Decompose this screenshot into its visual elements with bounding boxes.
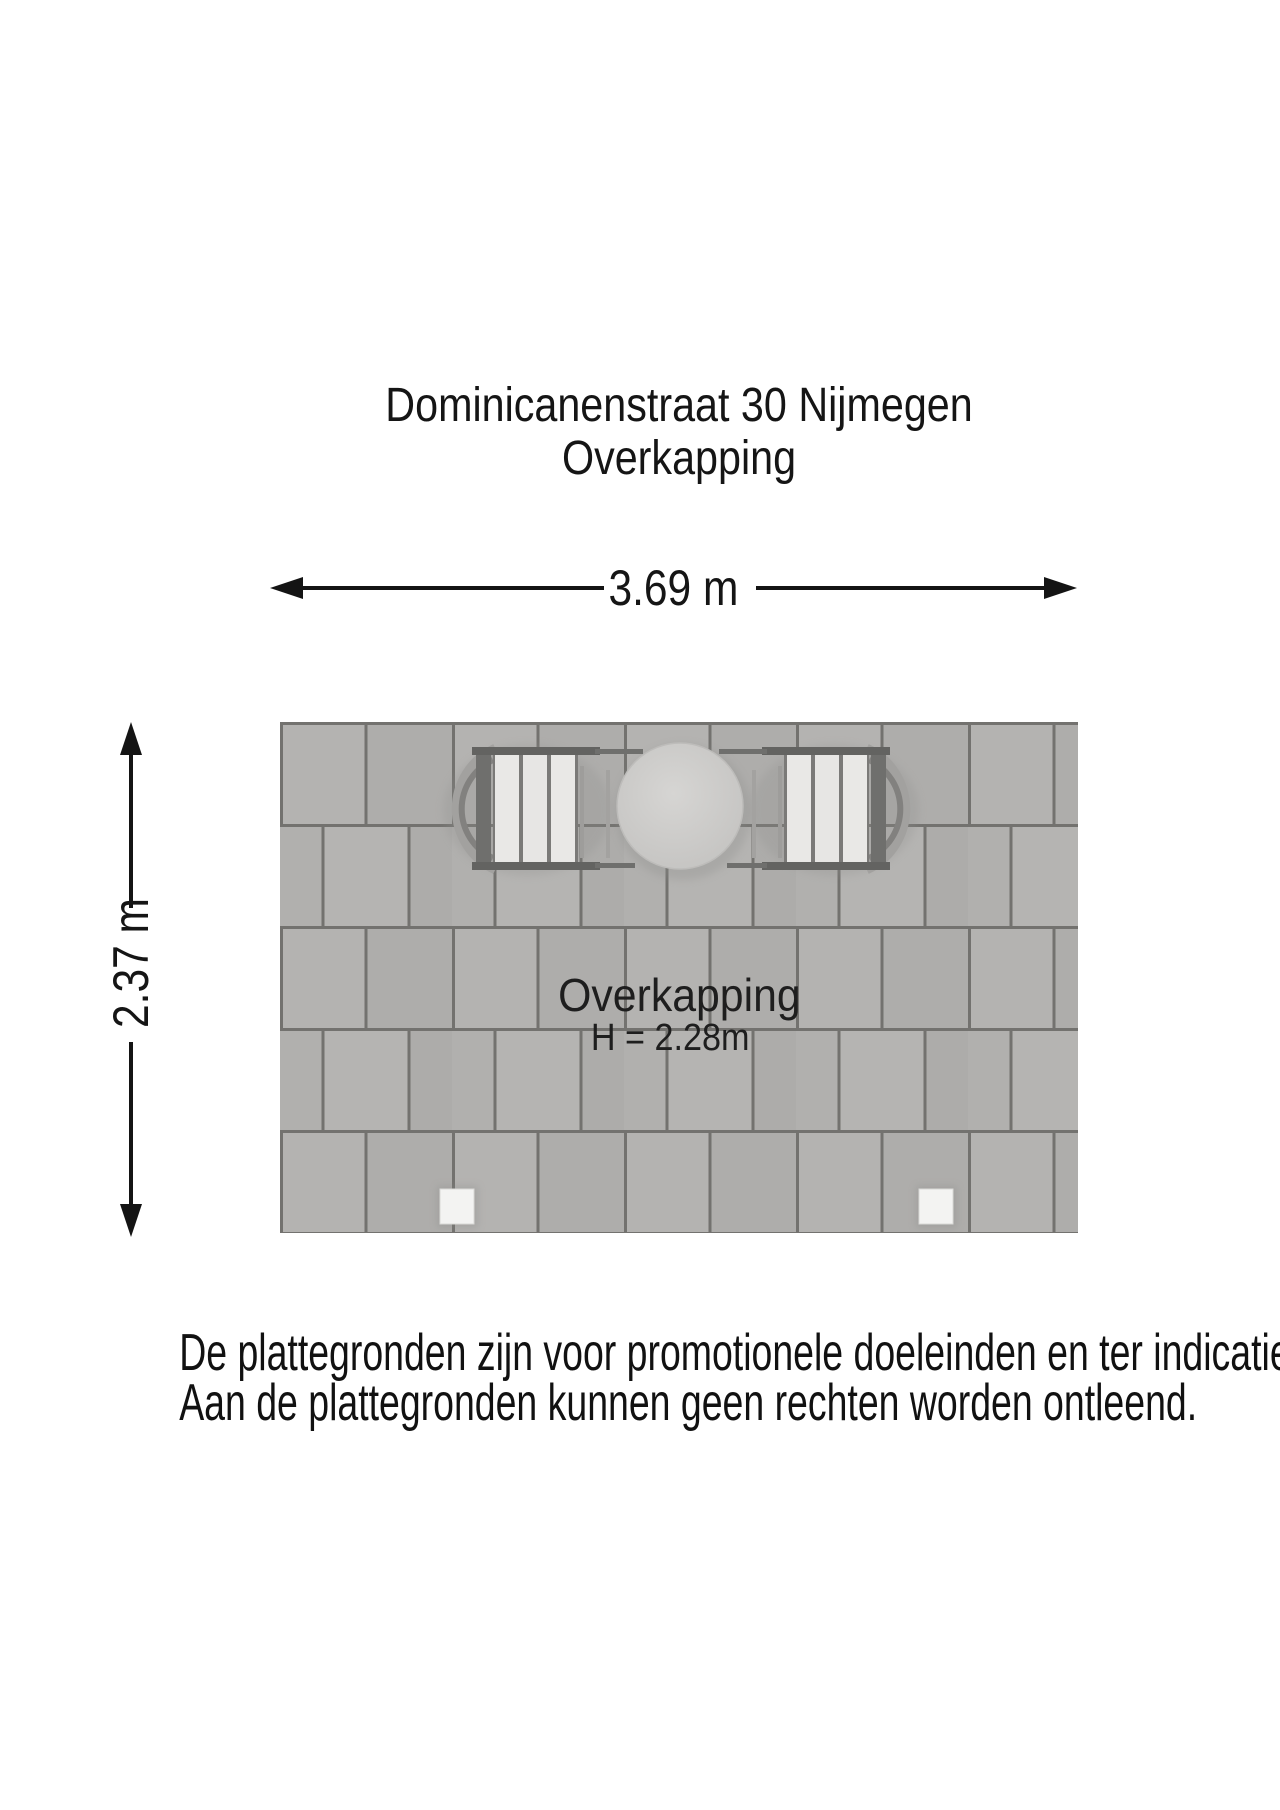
title-address: Dominicanenstraat 30 Nijmegen bbox=[336, 379, 1022, 432]
height-dimension-line-bottom bbox=[129, 1042, 133, 1208]
disclaimer: De plattegronden zijn voor promotionele … bbox=[0, 1328, 1280, 1428]
title-subtitle: Overkapping bbox=[336, 432, 1022, 485]
disclaimer-line-1: De plattegronden zijn voor promotionele … bbox=[179, 1328, 1101, 1378]
width-dimension: 3.69 m bbox=[270, 566, 1077, 610]
post-left bbox=[437, 1186, 478, 1228]
floor-plan-page: Dominicanenstraat 30 Nijmegen Overkappin… bbox=[0, 0, 1280, 1810]
room-label: Overkapping bbox=[280, 971, 1078, 1019]
post-right bbox=[916, 1186, 957, 1228]
height-dimension-line-top bbox=[129, 750, 133, 908]
width-dimension-label: 3.69 m bbox=[270, 566, 1077, 610]
height-dimension: 2.37 m bbox=[111, 722, 157, 1237]
round-table bbox=[615, 743, 751, 880]
ceiling-height-label: H = 2.28m bbox=[280, 1018, 1060, 1058]
height-dimension-label: 2.37 m bbox=[102, 898, 160, 1028]
page-title: Dominicanenstraat 30 Nijmegen Overkappin… bbox=[280, 379, 1078, 485]
arrow-down-icon bbox=[120, 1204, 142, 1237]
disclaimer-line-2: Aan de plattegronden kunnen geen rechten… bbox=[179, 1378, 1101, 1428]
